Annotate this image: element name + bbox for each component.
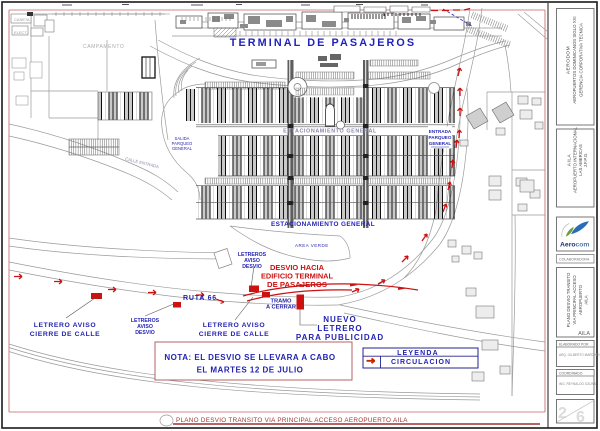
svg-text:AILA: AILA — [578, 331, 590, 337]
svg-text:GENERAL: GENERAL — [429, 141, 452, 146]
svg-text:CAMPAMENTO: CAMPAMENTO — [83, 44, 124, 50]
svg-text:DE PASAJEROS: DE PASAJEROS — [267, 280, 327, 289]
svg-text:PARA PUBLICIDAD: PARA PUBLICIDAD — [296, 333, 384, 342]
svg-text:AEROPUERTOS DOMINICANOS SIGLO: AEROPUERTOS DOMINICANOS SIGLO XXI — [572, 16, 577, 103]
svg-text:EL MARTES 12 DE JULIO: EL MARTES 12 DE JULIO — [197, 366, 304, 375]
svg-text:AREA VERDE: AREA VERDE — [295, 243, 329, 248]
svg-text:GERENCIA CORPORATIVA TECNICA: GERENCIA CORPORATIVA TECNICA — [579, 23, 584, 97]
svg-text:AILA: AILA — [584, 295, 589, 304]
svg-text:NUEVO: NUEVO — [323, 315, 356, 324]
svg-text:A CERRAR: A CERRAR — [266, 305, 297, 311]
svg-text:DESVIO: DESVIO — [135, 330, 155, 336]
svg-text:ELABORADO POR: ELABORADO POR — [559, 343, 589, 347]
svg-text:ARQ. GILBERTO MARCHENA: ARQ. GILBERTO MARCHENA — [559, 353, 600, 357]
svg-text:J.F.P.G.: J.F.P.G. — [583, 153, 588, 168]
svg-text:ESTACIONAMIENTO GENERAL: ESTACIONAMIENTO GENERAL — [271, 221, 375, 228]
svg-text:DESVIO: DESVIO — [242, 264, 262, 270]
svg-text:PLANO DESVIO TRANSITO: PLANO DESVIO TRANSITO — [566, 272, 571, 327]
svg-text:LEYENDA: LEYENDA — [397, 350, 439, 357]
svg-text:LETRERO AVISO: LETRERO AVISO — [34, 322, 97, 329]
svg-text:com: com — [576, 242, 590, 249]
svg-text:Aero: Aero — [560, 242, 576, 249]
svg-text:CIRCULACION: CIRCULACION — [391, 359, 451, 366]
svg-text:CIERRE DE CALLE: CIERRE DE CALLE — [30, 331, 101, 338]
svg-text:COLABORADORA: COLABORADORA — [559, 258, 590, 262]
svg-text:AEROPUERTO INTERNACIONAL: AEROPUERTO INTERNACIONAL — [573, 126, 578, 193]
svg-text:CIERRE DE CALLE: CIERRE DE CALLE — [199, 331, 270, 338]
svg-text:ENTRADA: ENTRADA — [429, 129, 452, 134]
svg-text:VIA PRINCIPAL ACCESO: VIA PRINCIPAL ACCESO — [572, 275, 577, 325]
svg-text:LETRERO: LETRERO — [317, 324, 362, 333]
svg-text:COORDINADO: COORDINADO — [559, 372, 583, 376]
svg-text:TERMINAL DE PASAJEROS: TERMINAL DE PASAJEROS — [230, 37, 416, 49]
svg-text:ESTACIONAMIENTO GENERAL: ESTACIONAMIENTO GENERAL — [283, 129, 377, 135]
svg-text:RUTA 66: RUTA 66 — [183, 295, 217, 302]
svg-text:ING. REYNALDO OZUNA: ING. REYNALDO OZUNA — [559, 382, 597, 386]
svg-text:AERODOM: AERODOM — [566, 46, 572, 74]
svg-text:PLANO DESVIO TRANSITO VIA PRIN: PLANO DESVIO TRANSITO VIA PRINCIPAL ACCE… — [176, 417, 408, 424]
svg-text:GENERAL: GENERAL — [172, 146, 193, 151]
svg-text:2: 2 — [558, 405, 567, 422]
svg-text:ELECT.: ELECT. — [14, 30, 28, 35]
svg-text:6: 6 — [576, 409, 585, 426]
svg-text:CASETA: CASETA — [14, 17, 30, 22]
svg-text:NOTA: EL DESVIO SE LLEVARA A C: NOTA: EL DESVIO SE LLEVARA A CABO — [164, 353, 335, 362]
svg-text:PARQUEO: PARQUEO — [429, 135, 452, 140]
svg-text:LETRERO AVISO: LETRERO AVISO — [203, 322, 266, 329]
svg-text:AEROPUERTO: AEROPUERTO — [578, 284, 583, 315]
